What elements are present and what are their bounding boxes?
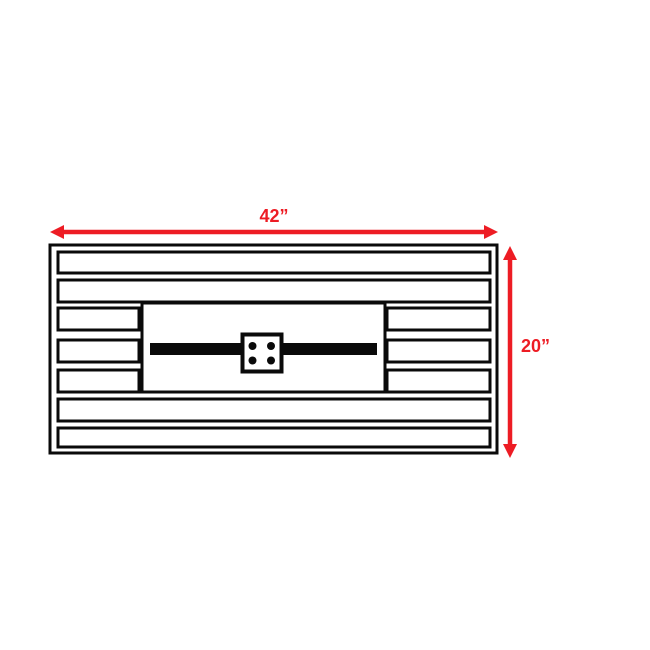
igniter-dot bbox=[249, 342, 257, 350]
arrow-down-icon bbox=[503, 444, 517, 458]
diagram-canvas: 42” 20” bbox=[0, 0, 650, 650]
igniter-dot bbox=[267, 357, 275, 365]
igniter-dot bbox=[249, 357, 257, 365]
slat-row-7 bbox=[58, 428, 490, 447]
slat-row-3-right bbox=[387, 308, 490, 330]
slat-row-5-right bbox=[387, 370, 490, 392]
igniter-box bbox=[243, 335, 282, 372]
slat-row-2 bbox=[58, 280, 490, 302]
slat-row-5-left bbox=[58, 370, 139, 392]
width-dimension-arrow bbox=[50, 225, 498, 239]
arrow-up-icon bbox=[503, 246, 517, 260]
slat-row-3-left bbox=[58, 308, 139, 330]
width-dimension-label: 42” bbox=[259, 206, 288, 226]
height-dimension-label: 20” bbox=[521, 336, 550, 356]
slat-row-4-left bbox=[58, 340, 139, 362]
height-dimension-arrow bbox=[503, 246, 517, 458]
dimension-drawing: 42” 20” bbox=[0, 0, 650, 650]
slat-row-4-right bbox=[387, 340, 490, 362]
arrow-right-icon bbox=[484, 225, 498, 239]
slat-row-6 bbox=[58, 399, 490, 421]
arrow-left-icon bbox=[50, 225, 64, 239]
igniter-dot bbox=[267, 342, 275, 350]
slat-row-1 bbox=[58, 252, 490, 273]
